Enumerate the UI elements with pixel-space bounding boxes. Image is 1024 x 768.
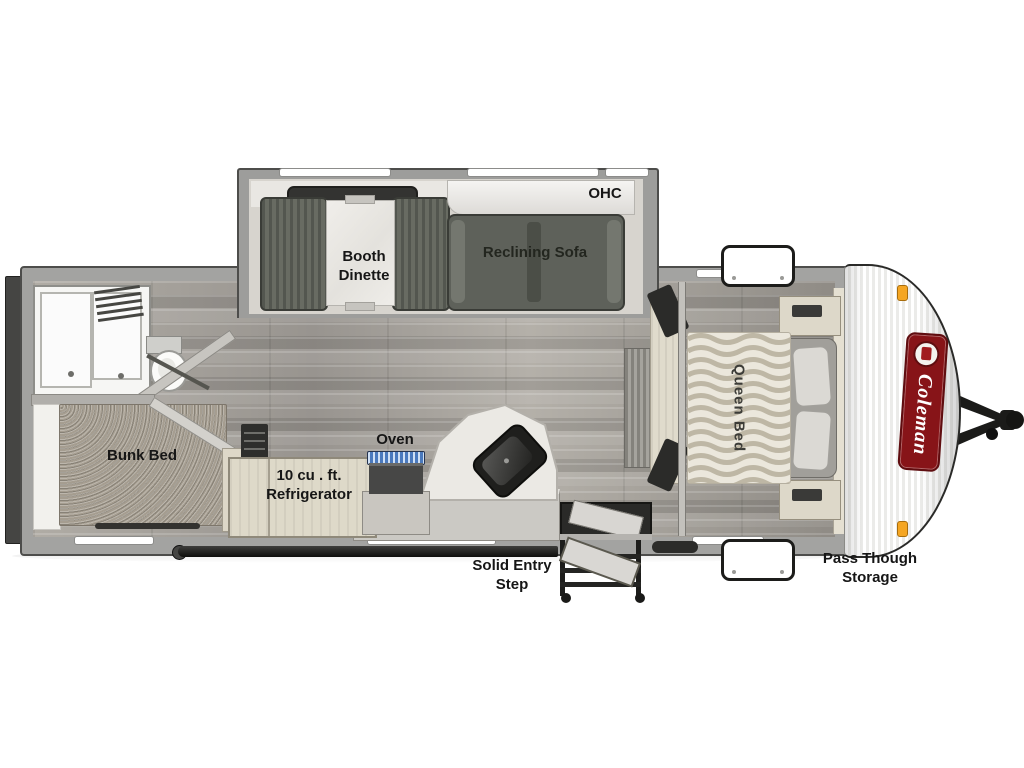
pillow (792, 346, 832, 407)
door-latch (732, 570, 736, 574)
reclining-sofa-label: Reclining Sofa (455, 243, 615, 262)
oven (369, 463, 423, 494)
oven-cabinet (362, 491, 430, 535)
oven-label: Oven (355, 430, 435, 449)
bedroom-divider-wall (678, 282, 686, 536)
queen-bed-label: Queen Bed (688, 333, 790, 483)
furnace-vent (241, 424, 268, 460)
nightstand-bottom (779, 480, 841, 520)
booth-dinette-label: Booth Dinette (312, 247, 416, 285)
floor-plan-canvas: Bunk Bed 10 cu . ft. Refrigerator Oven (0, 0, 1024, 768)
bunk-bed (59, 404, 227, 526)
headboard (789, 338, 837, 478)
booth-dinette-label-line2: Dinette (312, 266, 416, 285)
window-bottom-left (75, 537, 153, 544)
bunk-frame (95, 523, 200, 529)
pass-through-storage-label-line1: Pass Though (790, 549, 950, 568)
refrigerator-label: 10 cu . ft. Refrigerator (246, 466, 372, 504)
grab-handle (652, 541, 698, 553)
clearance-light-bottom (897, 521, 908, 537)
nightstand-top (779, 296, 841, 336)
pass-through-door-top (721, 245, 795, 287)
solid-entry-step-label-line1: Solid Entry (442, 556, 582, 575)
booth-dinette-label-line1: Booth (312, 247, 416, 266)
pillow (792, 410, 832, 471)
window-slide-left (280, 169, 390, 176)
nightstand-bottom-slot (792, 489, 822, 501)
pass-through-door-bottom (721, 539, 795, 581)
table-edge (345, 195, 375, 204)
pass-through-storage-label-line2: Storage (790, 568, 950, 587)
nightstand-top-slot (792, 305, 822, 317)
window-slide-right (606, 169, 648, 176)
refrigerator-label-line1: 10 cu . ft. (246, 466, 372, 485)
ohc-label: OHC (580, 184, 630, 203)
queen-bed: Queen Bed (687, 332, 791, 484)
bunk-headboard (33, 404, 61, 530)
pass-through-storage-label: Pass Though Storage (790, 549, 950, 587)
bunk-bed-label: Bunk Bed (78, 446, 206, 465)
shower-glass-panel (40, 292, 92, 388)
bedroom-bench (624, 348, 652, 468)
sofa-console (527, 222, 541, 302)
door-latch (780, 570, 784, 574)
table-edge (345, 302, 375, 311)
shower-drain (68, 371, 74, 377)
clearance-light-top (897, 285, 908, 301)
door-latch (732, 276, 736, 280)
reclining-sofa (447, 214, 625, 311)
coleman-lantern-emblem (912, 340, 940, 368)
entry-step-well (560, 502, 652, 538)
shower-drain (118, 373, 124, 379)
solid-entry-step-label: Solid Entry Step (442, 556, 582, 594)
bathroom-shelf (94, 285, 144, 323)
solid-entry-step-label-line2: Step (442, 575, 582, 594)
door-latch (780, 276, 784, 280)
coleman-logo-text: Coleman (900, 366, 945, 464)
refrigerator-label-line2: Refrigerator (246, 485, 372, 504)
window-slide-center (468, 169, 598, 176)
